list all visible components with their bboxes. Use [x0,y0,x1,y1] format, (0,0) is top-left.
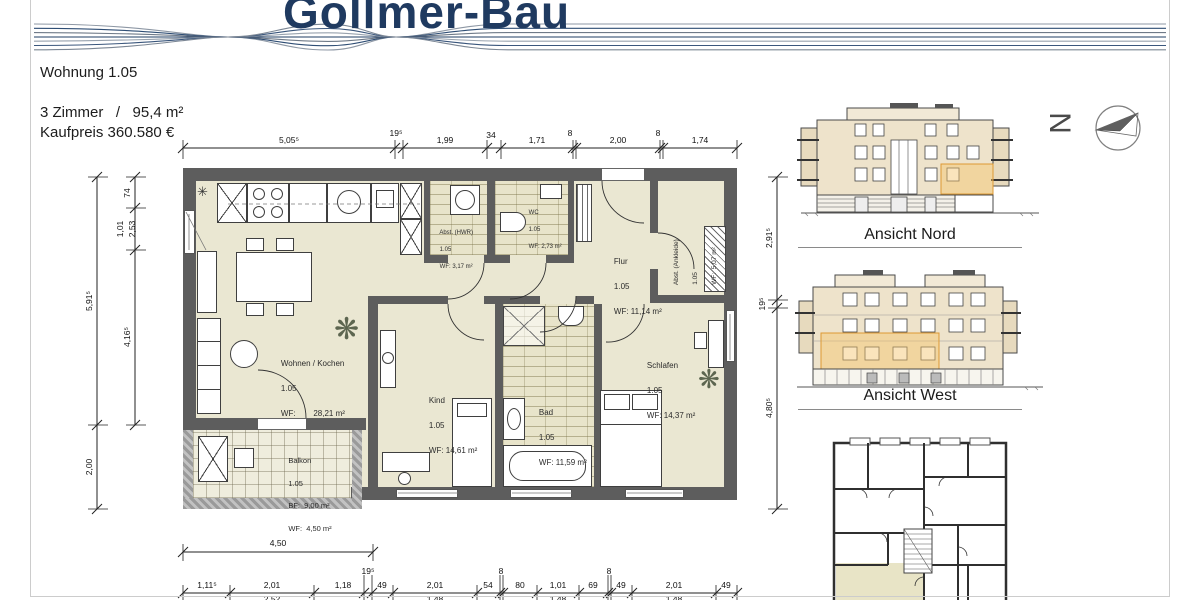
balcony-wall-bottom [183,498,361,509]
schlafen-desk [708,320,724,368]
plant-icon: ❋ [698,364,720,395]
plant-icon: ❋ [334,312,359,347]
key-plan-drawing [828,437,1013,600]
shower [503,306,545,346]
dim-label: 2,53 [127,221,137,238]
stove-burner [253,188,265,200]
stove-burner [271,206,283,218]
washing-machine-drum [455,190,475,210]
price-line: Kaufpreis 360.580 € [40,124,174,141]
kitchen-sink [337,190,361,214]
bath-sink-bowl [507,408,521,430]
wall-hwr-wc [487,181,495,263]
north-compass-icon [1088,96,1148,156]
wall-wc-flur [568,181,574,263]
flur-wardrobe [576,184,592,242]
dim-label: 4,16⁵ [122,327,132,347]
kind-door-opening [448,296,484,304]
balcony-table [234,448,254,468]
dim-label: 2,52 [264,594,281,600]
balcony-lounger [198,436,228,482]
dim-label: 1,74 [692,135,709,145]
window-bath [510,489,572,498]
window-kind [396,489,458,498]
schlafen-chair [694,332,707,349]
snowflake-icon: ✳ [197,184,208,200]
room-label-wc: WC 1.05 WF: 2,73 m² [522,200,562,261]
entrance-door-opening [602,168,644,181]
page-border-bottom [30,596,1170,597]
dim-label: 5,91⁵ [84,291,94,311]
dim-label: 1,18 [335,580,352,590]
wall-left [183,168,196,430]
dim-label: 74 [122,188,132,197]
divider-line [798,409,1022,410]
wall-living-kind [368,304,378,487]
wall-top [183,168,737,181]
dim-label: 54 [483,580,492,590]
bath-door-opening [540,296,576,304]
dining-chair [246,303,264,316]
apartment-title: Wohnung 1.05 [40,64,137,81]
dim-label: 4,50 [270,538,287,548]
sofa [197,318,221,414]
washbasin-bowl [382,352,394,364]
divider-line [798,247,1022,248]
dim-label: 2,00 [84,459,94,476]
dim-label: 49 [377,580,386,590]
ribbon-lines-decoration [28,20,1172,54]
dim-label: 5,05⁵ [279,135,299,145]
dim-label: 1,48 [427,594,444,600]
dim-label: 2,01 [264,580,281,590]
dim-label: 4,80⁵ [764,398,774,418]
room-label-balkon: Balkon 1.05 BF: 9,00 m² WF: 4,50 m² [280,444,332,545]
company-logo-text: Gollmer-Bau [283,0,570,39]
room-label-bad: Bad 1.05 WF: 11,59 m² [530,395,587,482]
room-label-flur: Flur 1.05 WF: 11,14 m² [605,244,662,331]
dim-label: 80 [515,580,524,590]
kitchen-appliance-inner [376,190,394,208]
dim-label: 8 [607,566,612,576]
dim-label: 2,01 [666,580,683,590]
rooms-size-line: 3 Zimmer / 95,4 m² [40,104,183,121]
dim-label: 1,99 [437,135,454,145]
dining-table [236,252,312,302]
wall-kind-bath [495,304,503,487]
tall-cabinet [400,183,422,219]
room-label-hwr: Abst. (HWR) 1.05 WF: 3,17 m² [433,220,473,281]
kitchen-cabinet [217,183,247,223]
shelf [197,251,217,313]
dining-chair [276,238,294,251]
tall-cabinet [400,219,422,255]
wall-ankleide-bottom [650,295,737,303]
dining-chair [246,238,264,251]
room-label-wohnen: Wohnen / Kochen 1.05 WF: 28,21 m² [272,346,345,433]
dim-label: 8 [568,128,573,138]
dim-label: 69 [588,580,597,590]
stove-burner [253,206,265,218]
dim-label: 19⁵ [390,128,403,138]
dim-label: 1,01 [115,221,125,238]
balcony-wall-left [183,430,193,508]
dim-label: 2,91⁵ [764,228,774,248]
dim-label: 2,01 [427,580,444,590]
kitchen-counter [289,183,327,223]
window-schlafen-right [726,310,735,362]
elevation-west-label: Ansicht West [798,387,1022,405]
page-border-right [1169,0,1170,597]
stove-burner [271,188,283,200]
side-table [230,340,258,368]
room-label-kind: Kind 1.05 WF: 14,61 m² [420,383,477,470]
room-label-ankleide: Abst. (Ankleide) 1.05 WF: 5,07 m² [663,184,729,292]
elevation-nord-label: Ansicht Nord [798,226,1022,244]
dim-label: 2,00 [610,135,627,145]
kind-chair [398,472,411,485]
window-living-left [184,210,195,254]
dim-label: 8 [499,566,504,576]
dim-label: 34 [486,130,495,140]
dim-label: 49 [616,580,625,590]
window-schlafen [625,489,684,498]
dim-label: 1,71 [529,135,546,145]
dim-label: 1,48 [550,594,567,600]
page-border-left [30,0,31,597]
kitchen-stove [247,183,289,223]
dim-label: 8 [656,128,661,138]
dim-label: 1,01 [550,580,567,590]
balcony-wall-right [352,430,362,509]
dim-label: 1,11⁵ [197,580,216,590]
dim-label: 19⁵ [362,566,375,576]
wc-sink [540,184,562,199]
floorplan-sheet: Gollmer-Bau Wohnung 1.05 3 Zimmer / 95,4… [0,0,1200,600]
wall-kitchen-hwr [424,181,430,263]
dim-label: 19⁵ [757,298,767,311]
dining-chair [276,303,294,316]
dim-label: 1,48 [666,594,683,600]
toilet [558,306,584,326]
bed-pillow [604,394,630,410]
room-label-schlafen: Schlafen 1.05 WF: 14,37 m² [638,348,695,435]
north-letter: N [1042,112,1076,134]
dim-label: 49 [721,580,730,590]
